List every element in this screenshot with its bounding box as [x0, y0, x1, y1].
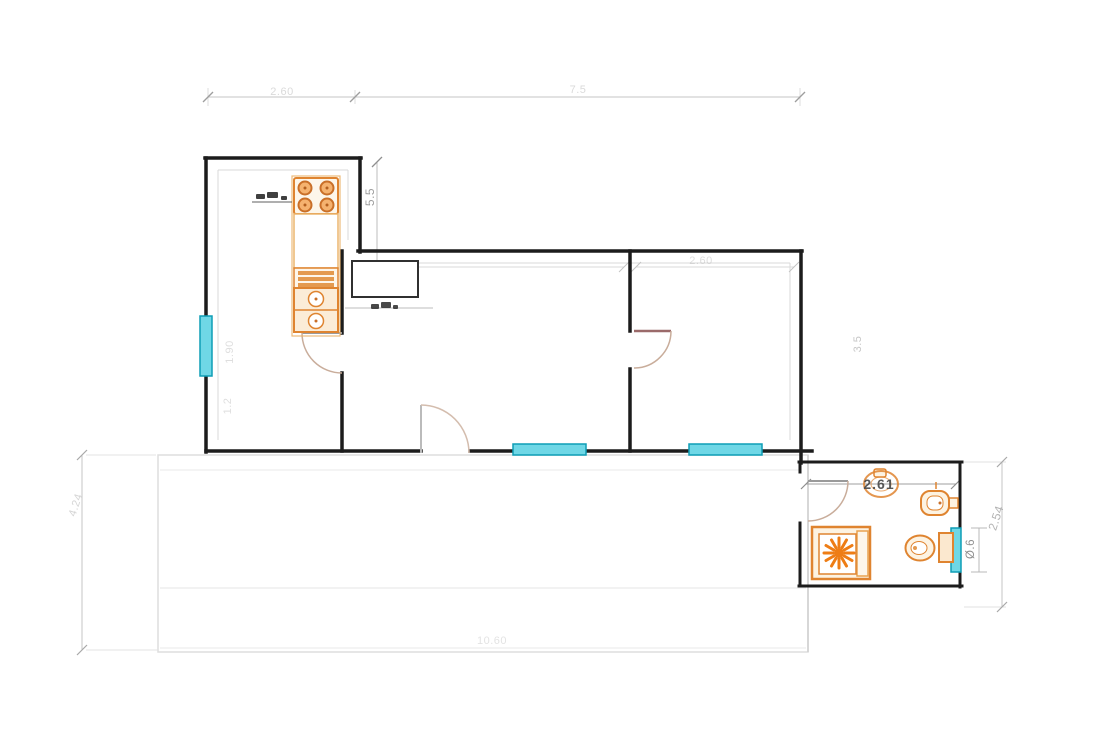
- kitchen-fixtures: [252, 176, 340, 336]
- toilet-icon: [906, 533, 954, 562]
- kitchen-sink-icon: [294, 288, 338, 332]
- dim-label-right-wall: 3.5: [852, 336, 864, 353]
- hall-room: [345, 261, 433, 309]
- dim-label-kitchen-wall: 1.2: [222, 398, 234, 415]
- dim-label-bottom-width: 10.60: [477, 635, 507, 647]
- kitchen-window: [200, 316, 212, 376]
- dim-label-kitchen-height: 5.5: [363, 188, 377, 206]
- dim-label-kitchen-window: 1.90: [224, 340, 236, 363]
- bedroom-window: [689, 444, 762, 455]
- dim-label-bathroom-window: Ø.6: [965, 539, 977, 559]
- terrace-outline: [158, 455, 808, 652]
- kitchen-faucet-icon: [252, 192, 292, 202]
- dim-label-bedroom-width: 2.60: [689, 255, 712, 267]
- dim-label-top-left: 2.60: [270, 86, 293, 98]
- kitchen-drawers-icon: [294, 268, 338, 288]
- entry-door: [421, 405, 469, 453]
- shower-icon: [812, 527, 870, 579]
- floor-plan-canvas: 2.60 7.5 5.5 1.90 1.2 2.60 3.5 2.61 Ø.6 …: [0, 0, 1109, 741]
- living-window: [513, 444, 586, 455]
- kitchen-counter-icon: [294, 214, 338, 268]
- dim-label-top-right: 7.5: [570, 84, 587, 96]
- stove-icon: [294, 178, 338, 214]
- floor-plan-drawing: [0, 0, 1109, 741]
- doors: [302, 331, 848, 521]
- kitchen-door: [302, 333, 342, 373]
- dim-label-bathroom-width: 2.61: [863, 476, 894, 492]
- bathroom-door: [808, 481, 848, 521]
- bedroom-door: [634, 331, 671, 368]
- hall-faucet-icon: [371, 302, 398, 309]
